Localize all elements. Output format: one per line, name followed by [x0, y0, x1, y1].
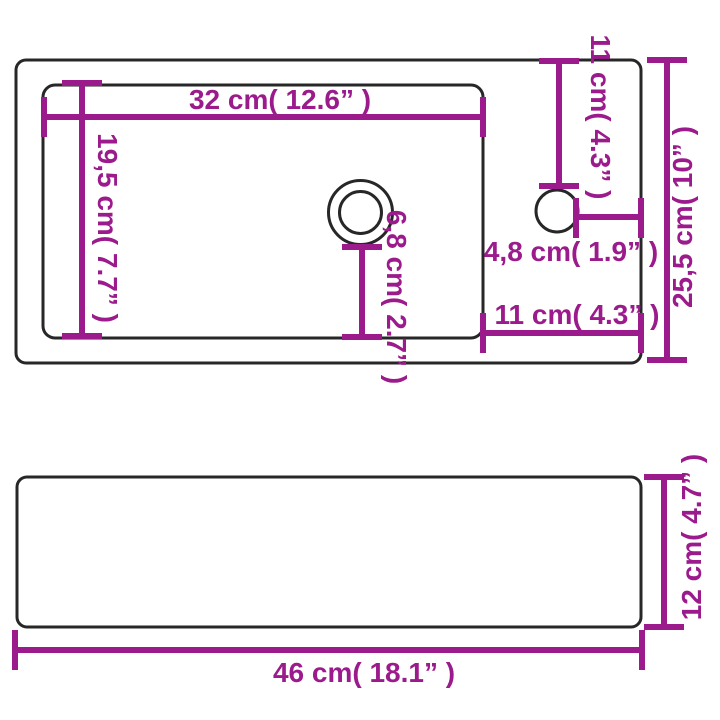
sink-outline-side-view — [17, 477, 641, 627]
dim-faucet-top-offset — [539, 61, 579, 186]
dim-faucet-side-offset-label: 4,8 cm( 1.9” ) — [484, 238, 658, 266]
dim-drain-offset — [342, 247, 382, 337]
dim-total-depth-label: 25,5 cm( 10” ) — [669, 126, 697, 308]
dim-faucet-top-offset-label: 11 cm( 4.3” ) — [586, 35, 614, 200]
dim-basin-right-gap-label: 11 cm( 4.3” ) — [495, 301, 660, 329]
dim-basin-depth-label: 19,5 cm( 7.7” ) — [93, 133, 121, 323]
dim-total-height-label: 12 cm( 4.7” ) — [678, 454, 706, 621]
drain-hole-inner-ring — [340, 192, 382, 234]
dim-faucet-side-offset — [576, 198, 641, 238]
faucet-hole — [536, 190, 578, 232]
dim-basin-width-label: 32 cm( 12.6” ) — [189, 86, 371, 114]
side-view — [17, 477, 641, 627]
dim-total-width-label: 46 cm( 18.1” ) — [273, 659, 455, 687]
dim-drain-offset-label: 6,8 cm( 2.7” ) — [382, 210, 410, 384]
sink-dimension-diagram: 32 cm( 12.6” ) 19,5 cm( 7.7” ) 11 cm( 4.… — [0, 0, 720, 720]
